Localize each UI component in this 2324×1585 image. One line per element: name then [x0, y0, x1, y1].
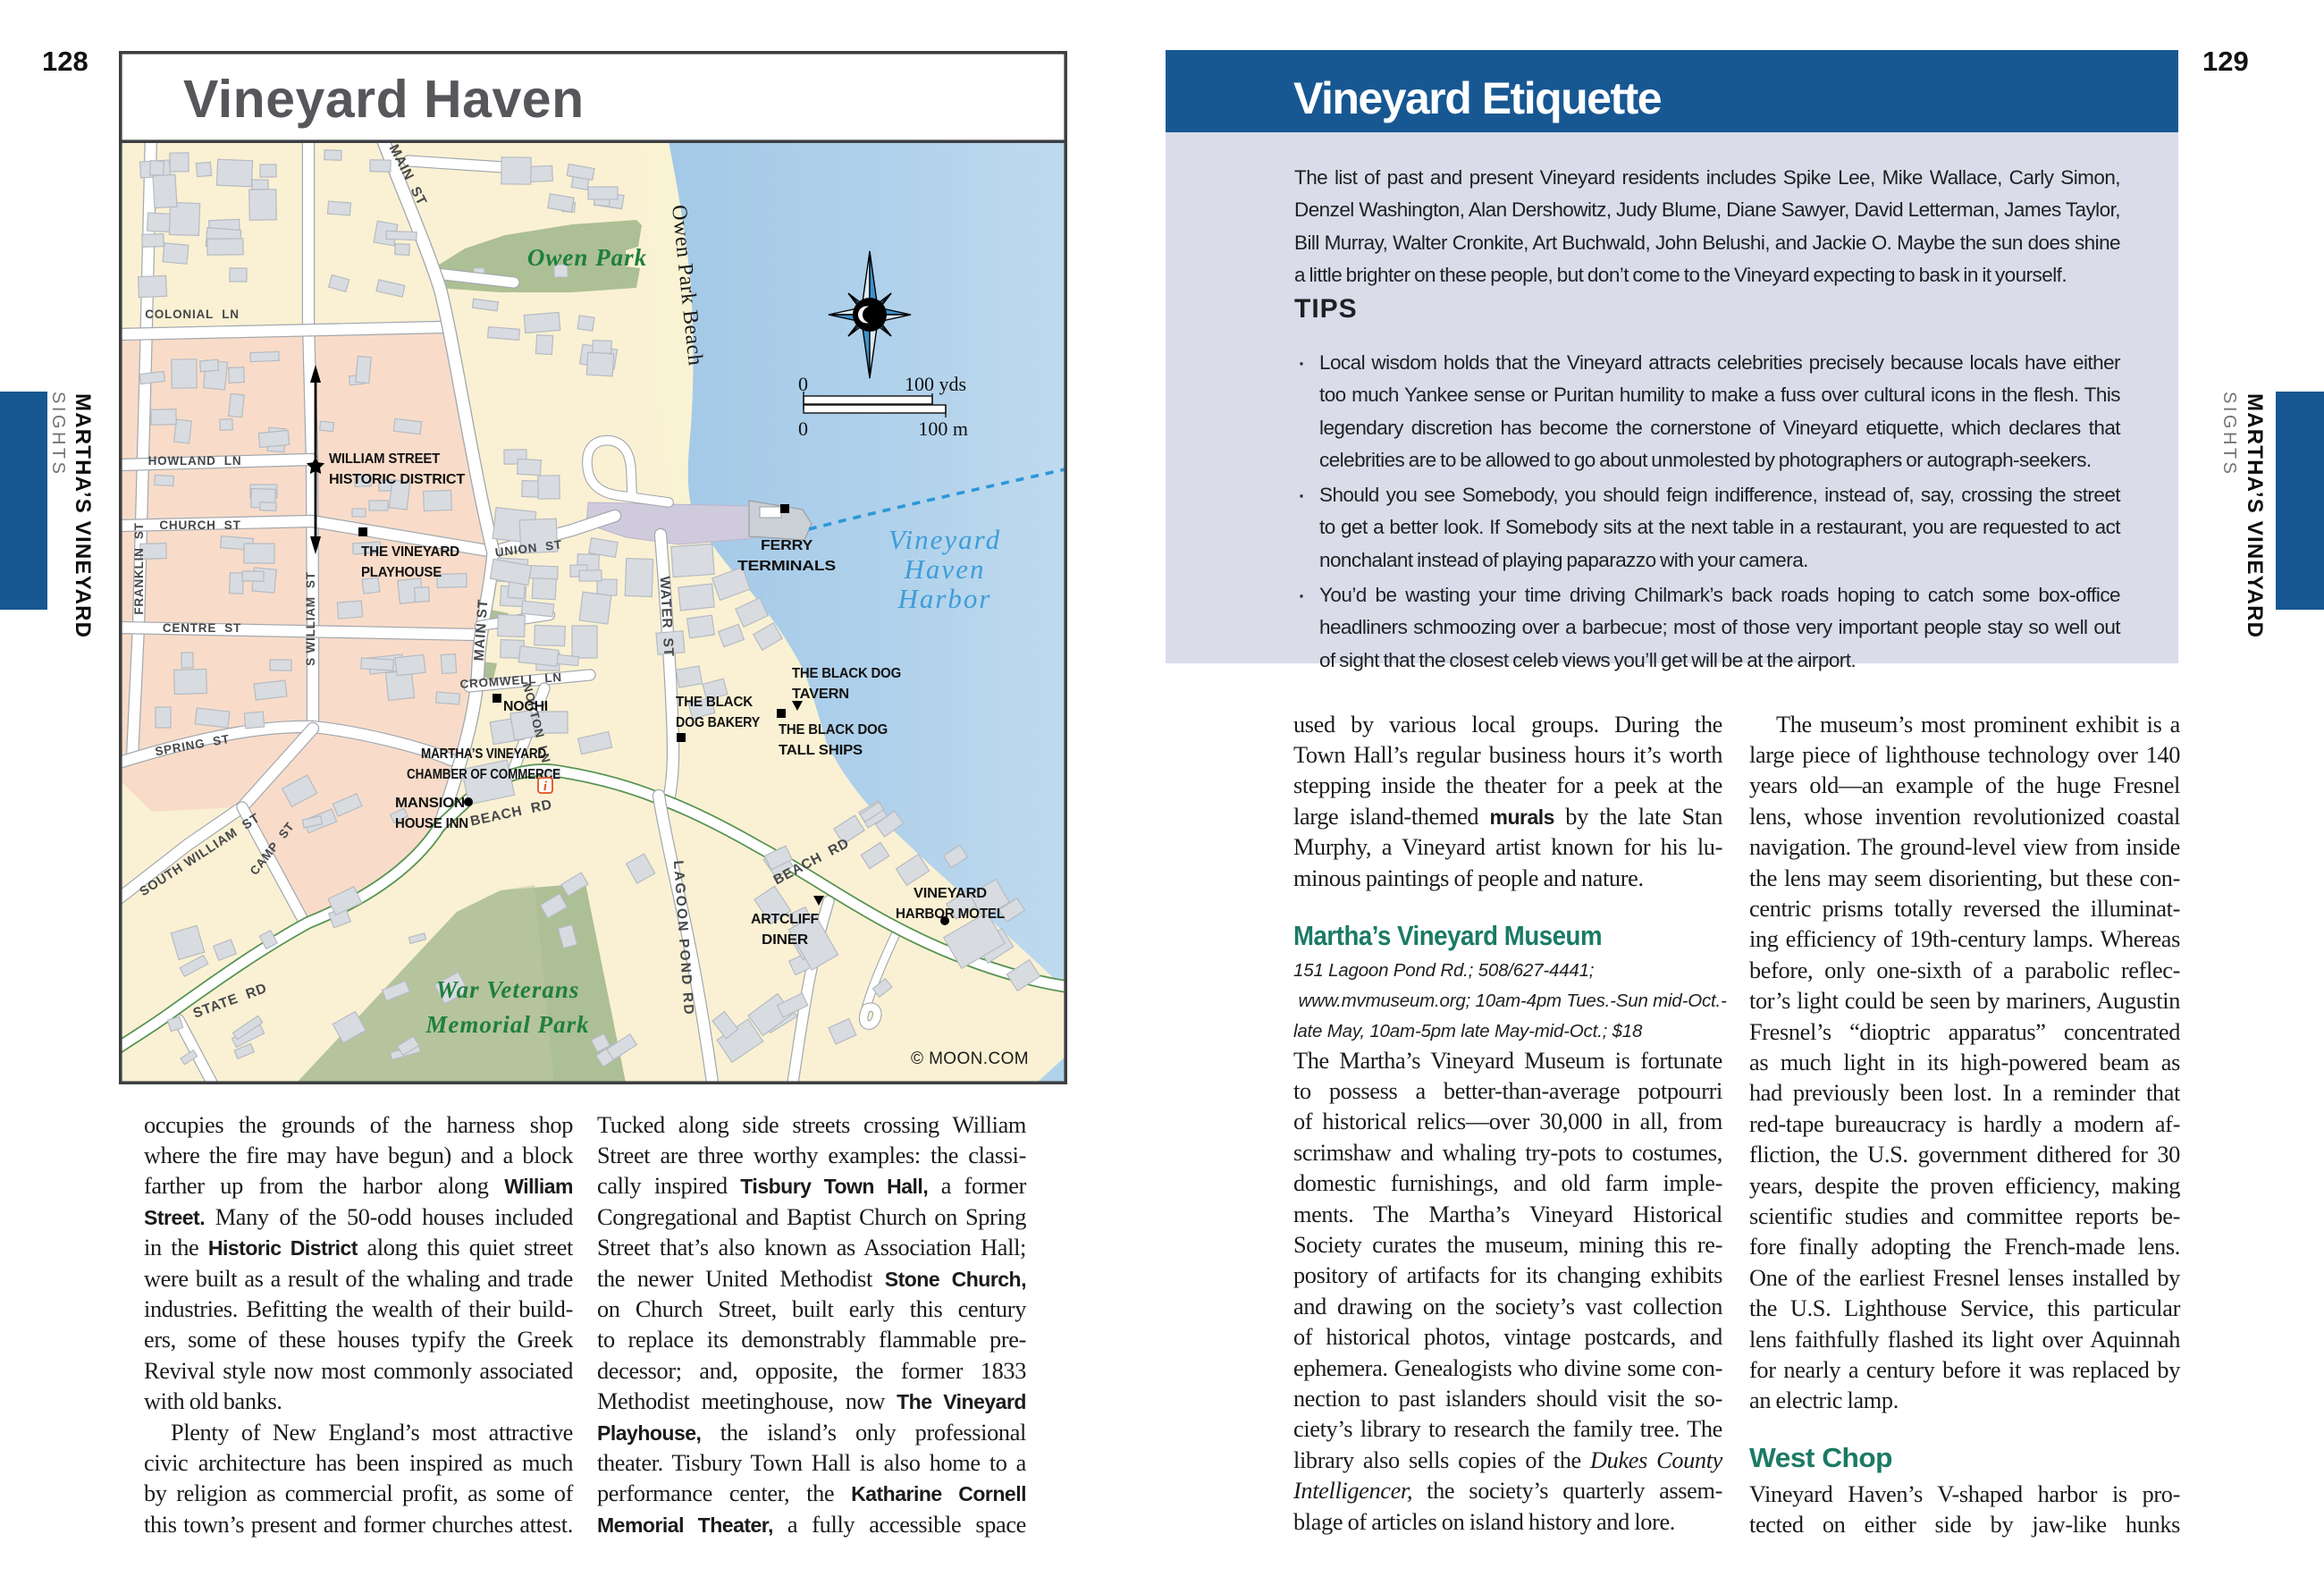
svg-text:PLAYHOUSE: PLAYHOUSE	[361, 565, 442, 580]
svg-text:Owen Park: Owen Park	[527, 244, 647, 271]
svg-text:HOUSE INN: HOUSE INN	[395, 816, 468, 831]
svg-text:THE BLACK: THE BLACK	[676, 695, 754, 710]
svg-text:100 m: 100 m	[918, 417, 968, 440]
svg-text:TAVERN: TAVERN	[792, 687, 849, 702]
svg-text:CHURCH ST: CHURCH ST	[159, 518, 240, 532]
svg-text:THE BLACK DOG: THE BLACK DOG	[779, 722, 888, 738]
svg-text:TALL SHIPS: TALL SHIPS	[779, 743, 863, 758]
svg-text:FRANKLIN ST: FRANKLIN ST	[132, 522, 146, 614]
svg-text:Haven: Haven	[904, 553, 986, 585]
svg-text:War Veterans: War Veterans	[436, 976, 580, 1003]
svg-text:Harbor: Harbor	[897, 583, 991, 614]
svg-text:HARBOR MOTEL: HARBOR MOTEL	[896, 906, 1005, 922]
svg-text:NOCHI: NOCHI	[503, 699, 548, 714]
svg-text:© MOON.COM: © MOON.COM	[911, 1050, 1029, 1068]
svg-text:Vineyard: Vineyard	[888, 524, 1001, 555]
svg-text:0: 0	[798, 417, 808, 440]
svg-text:CENTRE ST: CENTRE ST	[163, 621, 241, 635]
svg-text:DINER: DINER	[762, 932, 808, 948]
svg-text:MARTHA’S VINEYARD: MARTHA’S VINEYARD	[421, 746, 546, 762]
svg-text:THE BLACK DOG: THE BLACK DOG	[792, 666, 901, 681]
svg-text:VINEYARD: VINEYARD	[914, 886, 987, 901]
svg-text:COLONIAL LN: COLONIAL LN	[145, 308, 240, 321]
svg-text:THE VINEYARD: THE VINEYARD	[361, 544, 459, 560]
svg-text:TERMINALS: TERMINALS	[737, 559, 836, 574]
svg-text:FERRY: FERRY	[761, 538, 813, 553]
svg-text:ARTCLIFF: ARTCLIFF	[751, 912, 819, 927]
svg-text:HOWLAND LN: HOWLAND LN	[148, 454, 242, 468]
svg-text:S WILLIAM ST: S WILLIAM ST	[304, 571, 317, 666]
svg-text:MANSION: MANSION	[395, 796, 465, 811]
svg-text:Vineyard Haven: Vineyard Haven	[183, 70, 585, 129]
svg-text:DOG BAKERY: DOG BAKERY	[676, 715, 761, 730]
svg-text:100 yds: 100 yds	[905, 373, 966, 395]
svg-text:WILLIAM STREET: WILLIAM STREET	[329, 451, 441, 467]
svg-text:HISTORIC DISTRICT: HISTORIC DISTRICT	[329, 472, 466, 487]
svg-text:Memorial Park: Memorial Park	[425, 1011, 589, 1038]
